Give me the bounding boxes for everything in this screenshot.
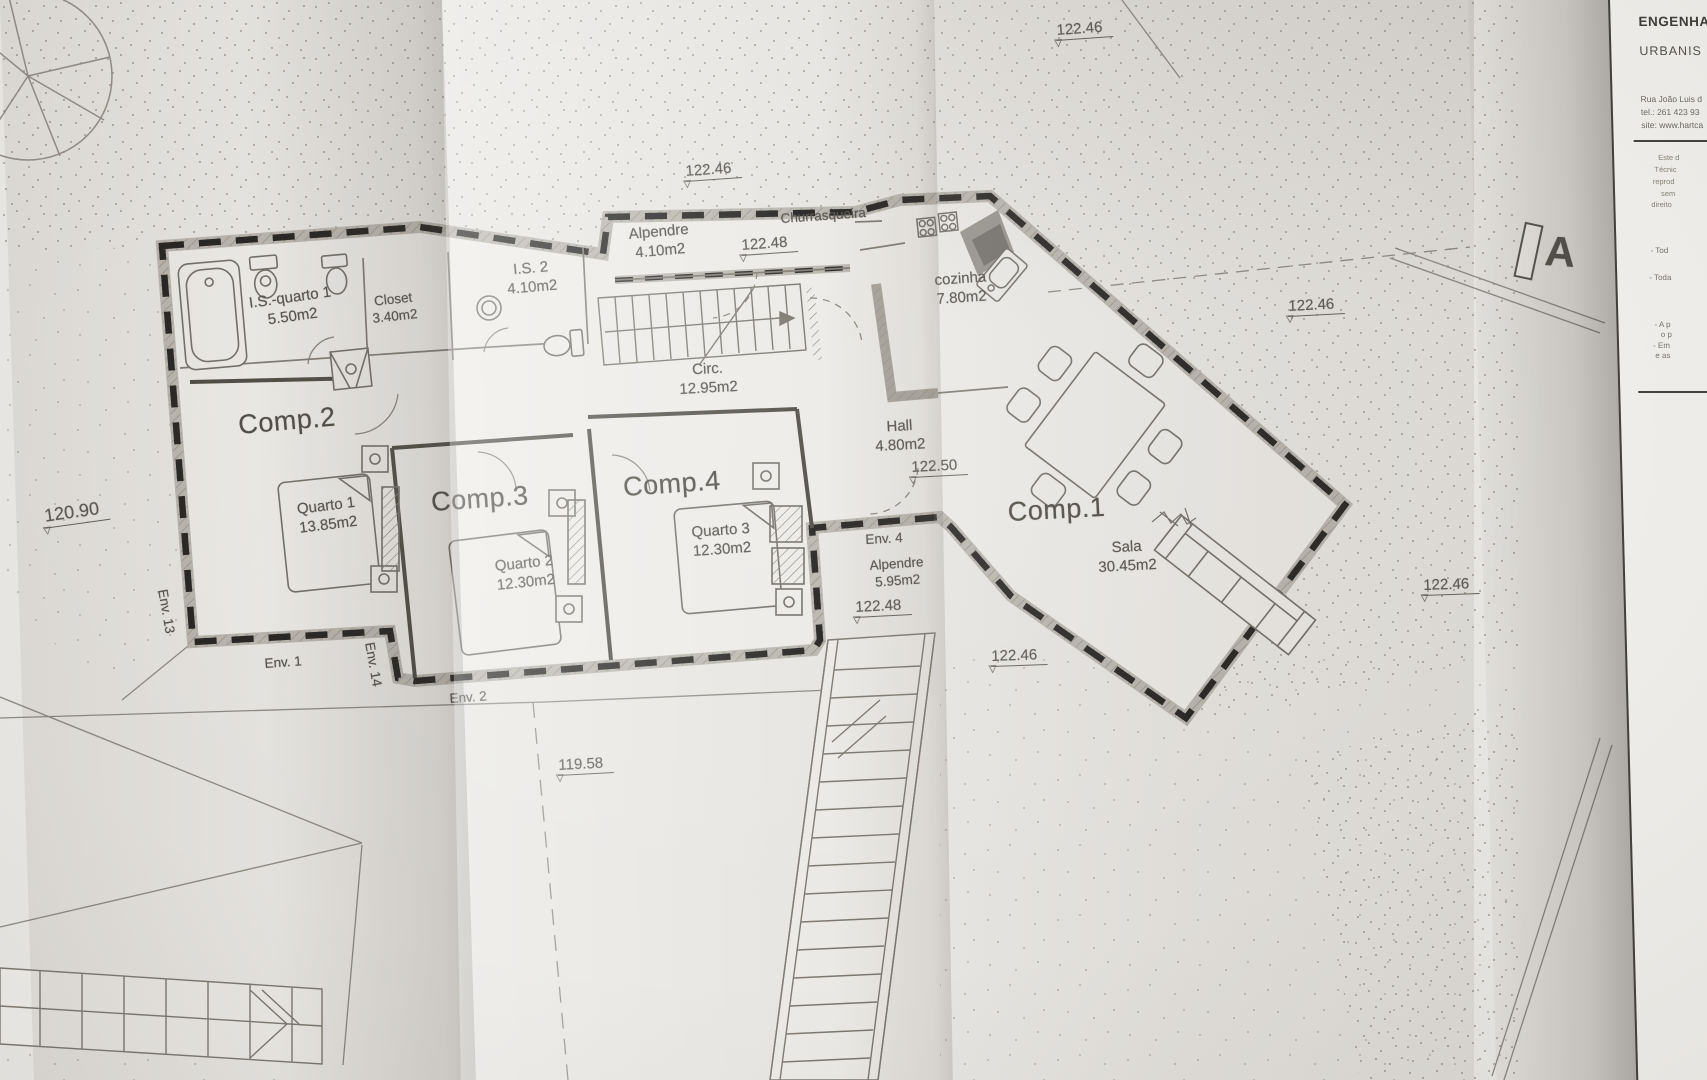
company-phone: tel.: 261 423 93 [1641,107,1700,117]
note-line: - Em [1653,341,1670,350]
level-marker-top: 122.46 ▽ [1055,18,1114,49]
level-value: 122.46 [1055,18,1113,41]
disclaimer-line: reprod [1653,177,1675,186]
room-label-quarto1: Quarto 1 13.85m2 [296,494,359,538]
floor-plan-drawing [0,0,1707,1080]
note-line: - Toda [1649,273,1671,282]
disclaimer-line: Técnic [1654,165,1676,174]
level-value: 122.46 [990,646,1048,667]
room-area: 7.80m2 [935,287,988,309]
level-marker-hall: 122.50 ▽ [910,456,968,486]
room-label-sala: Sala 30.45m2 [1097,537,1157,578]
stair-interior [598,284,806,365]
bathtub-icon [177,259,247,370]
level-value: 122.46 [1287,295,1345,317]
room-name: Comp.1 [1007,491,1106,530]
env1-label: Env. 1 [264,653,302,672]
room-label-comp1: Comp.1 [1007,491,1106,530]
level-marker-right-mid: 122.46 ▽ [1287,295,1345,325]
note-line: e as [1655,351,1670,360]
section-letter: A [1543,227,1577,277]
room-label-hall: Hall 4.80m2 [874,416,926,456]
level-value: 122.48 [740,233,798,256]
room-area: 4.80m2 [875,435,926,456]
disclaimer-line: sem [1661,189,1675,198]
room-label-cozinha: cozinha 7.80m2 [934,268,988,309]
disclaimer-line: Este d [1658,153,1680,162]
room-label-is2: I.S. 2 4.10m2 [505,258,558,300]
level-value: 119.58 [557,754,614,776]
level-value: 122.50 [910,456,968,478]
company-site: site: www.hartca [1641,120,1703,130]
room-area: 12.95m2 [679,378,738,400]
room-label-quarto2: Quarto 2 12.30m2 [494,552,556,595]
section-letter-text: A [1543,227,1577,276]
company-subtitle: URBANIS [1639,44,1702,58]
room-label-closet: Closet 3.40m2 [370,289,418,327]
env-name: Env. 1 [264,653,302,672]
level-marker-env4: 122.48 ▽ [854,596,912,626]
note-line: - Tod [1650,246,1668,255]
level-marker-alpendre: 122.48 ▽ [740,233,799,264]
company-name: ENGENHA [1638,14,1707,29]
room-area: 30.45m2 [1098,556,1157,578]
room-label-alpendre-side: Alpendre 5.95m2 [869,554,925,591]
divider [1638,391,1707,393]
env2-label: Env. 2 [449,688,487,707]
divider [1634,140,1707,142]
floor-plan-photo: Comp.2 Comp.3 Comp.4 Comp.1 Alpendre 4.1… [0,0,1707,1080]
level-marker-right-low: 122.46 ▽ [1422,575,1480,604]
level-value: 122.46 [684,159,742,182]
note-line: o p [1661,330,1672,339]
room-name: Comp.4 [622,464,722,504]
disclaimer-line: direito [1651,200,1672,209]
stair-bottom-right [770,633,935,1080]
company-address: Rua João Luis d [1640,94,1702,104]
level-marker-stair: 122.46 ▽ [990,646,1048,675]
level-value: 122.48 [854,596,912,618]
room-label-circ: Circ. 12.95m2 [678,359,738,400]
level-marker-lower: 119.58 ▽ [557,754,614,784]
env-name: Env. 2 [449,688,487,707]
env4-label: Env. 4 [865,530,903,549]
washbasin-icon [477,296,501,320]
note-line: - A p [1654,320,1670,329]
env-name: Env. 4 [865,530,903,549]
level-marker-upper: 122.46 ▽ [684,159,743,190]
room-label-quarto3: Quarto 3 12.30m2 [691,520,752,561]
level-value: 122.46 [1422,575,1480,596]
shower-icon [330,348,372,390]
room-label-comp4: Comp.4 [622,464,722,504]
stair-bottom-left [0,968,322,1064]
room-name: Comp.3 [430,479,530,519]
room-label-alpendre-top: Alpendre 4.10m2 [628,221,691,264]
room-label-comp3: Comp.3 [430,479,530,519]
